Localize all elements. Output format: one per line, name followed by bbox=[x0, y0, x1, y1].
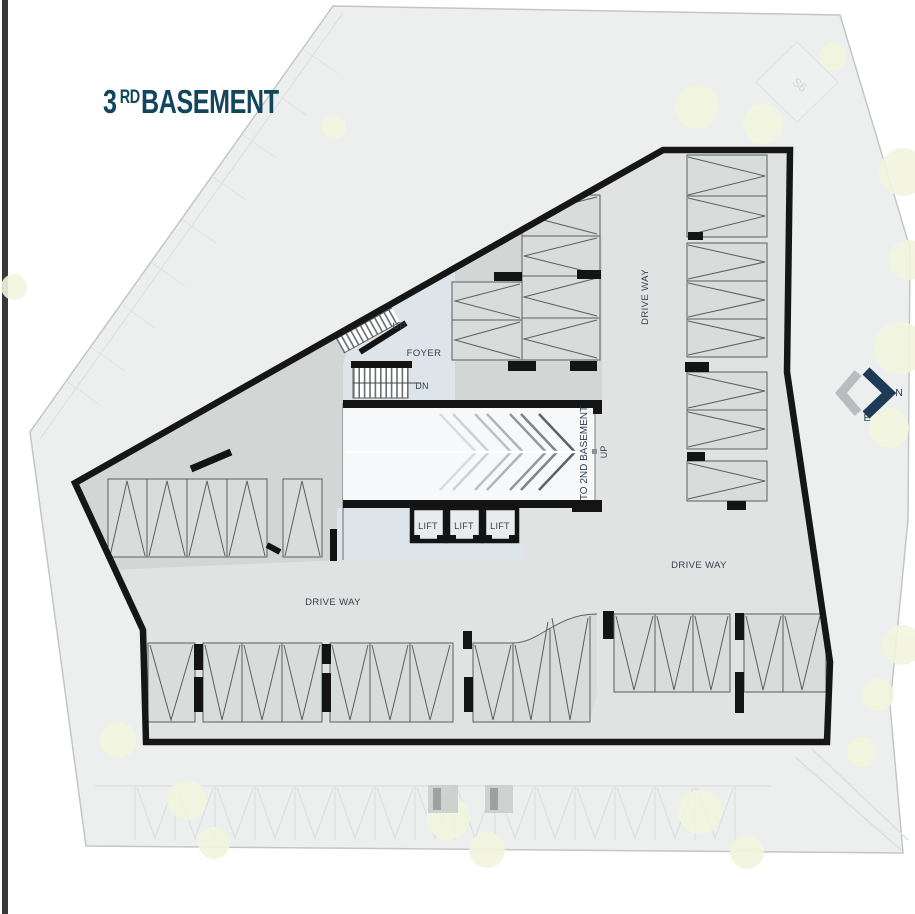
tree-icon bbox=[1, 274, 27, 300]
column-marker bbox=[735, 613, 744, 640]
page-title: 3 RD BASEMENT bbox=[103, 74, 279, 121]
floor-plan-page: S6 bbox=[0, 0, 915, 914]
tree-icon bbox=[469, 832, 505, 868]
driveway-west-label: DRIVE WAY bbox=[305, 597, 361, 608]
tree-icon bbox=[678, 790, 722, 834]
column-marker bbox=[464, 677, 473, 712]
ramp-top-wall bbox=[343, 400, 602, 408]
driveway-east-label: DRIVE WAY bbox=[640, 269, 651, 325]
title-number: 3 bbox=[103, 84, 117, 121]
driveway-southeast-label: DRIVE WAY bbox=[671, 560, 727, 571]
ramp-arrow-dot bbox=[592, 449, 597, 454]
column-marker bbox=[727, 501, 746, 510]
column-marker bbox=[322, 673, 331, 712]
column-marker bbox=[688, 232, 703, 240]
lift-label: LIFT bbox=[490, 521, 510, 531]
stair-wall bbox=[351, 361, 412, 368]
wall-segment bbox=[330, 529, 337, 561]
column-marker bbox=[194, 677, 203, 712]
ramp-deck bbox=[343, 408, 595, 500]
page-edge-line bbox=[2, 0, 8, 914]
column-marker bbox=[194, 644, 203, 670]
tree-icon bbox=[869, 408, 909, 448]
ramp-up-label: UP bbox=[599, 446, 609, 459]
compass-north-label: N bbox=[895, 387, 903, 399]
column-marker bbox=[577, 270, 601, 279]
tree-icon bbox=[819, 43, 847, 71]
ramp-destination-label: TO 2ND BASEMENT bbox=[579, 406, 590, 500]
tree-icon bbox=[862, 679, 894, 711]
wall-chunk bbox=[572, 500, 602, 512]
column-marker bbox=[687, 452, 705, 461]
title-word: BASEMENT bbox=[141, 84, 279, 121]
lift-label: LIFT bbox=[418, 521, 438, 531]
column-marker bbox=[570, 361, 597, 371]
column-marker bbox=[322, 644, 331, 664]
tree-icon bbox=[167, 780, 207, 820]
compass-east-label: E bbox=[863, 412, 870, 424]
column-marker bbox=[494, 272, 522, 281]
parking-stall bbox=[108, 479, 322, 557]
floor-plan-drawing: S6 bbox=[0, 0, 915, 914]
tree-icon bbox=[743, 104, 783, 144]
foyer-label: FOYER bbox=[407, 348, 442, 359]
tree-icon bbox=[730, 835, 764, 869]
wall-stub bbox=[593, 400, 602, 414]
up-label: UP bbox=[392, 321, 405, 331]
column-marker bbox=[508, 361, 536, 371]
tree-icon bbox=[198, 827, 230, 859]
column-marker bbox=[685, 362, 709, 372]
lift-label: LIFT bbox=[454, 521, 474, 531]
column-marker bbox=[735, 672, 744, 713]
tree-icon bbox=[847, 737, 877, 767]
ramp-to-2nd-basement bbox=[343, 408, 597, 500]
column-marker bbox=[463, 631, 472, 649]
dn-label: DN bbox=[415, 381, 429, 391]
tree-icon bbox=[100, 722, 136, 758]
tree-icon bbox=[675, 85, 719, 129]
title-ordinal: RD bbox=[120, 86, 140, 107]
column-marker bbox=[603, 611, 614, 639]
tree-icon bbox=[322, 115, 346, 139]
